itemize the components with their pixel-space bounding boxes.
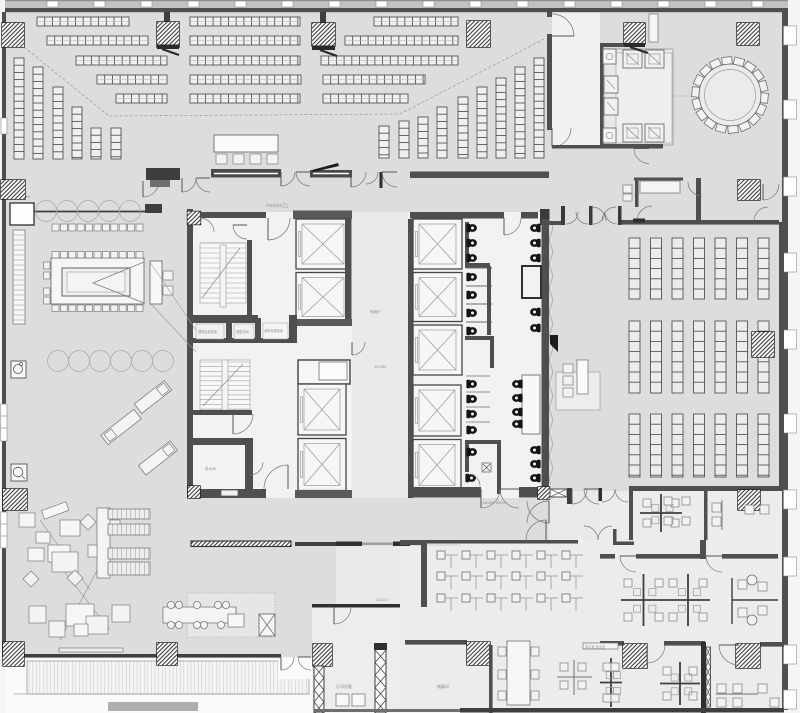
svg-text:10.002: 10.002 — [374, 364, 387, 369]
svg-text:电梯厅: 电梯厅 — [370, 309, 381, 314]
svg-text:打印设备: 打印设备 — [336, 683, 352, 689]
svg-text:FM1524(乙): FM1524(乙) — [266, 202, 289, 208]
svg-text:LOGO: LOGO — [376, 597, 388, 602]
svg-text:强电井间: 强电井间 — [236, 329, 249, 334]
svg-text:楼梯走道前室: 楼梯走道前室 — [198, 329, 217, 334]
svg-text:消防电梯前室: 消防电梯前室 — [264, 328, 283, 333]
svg-text:储藏间: 储藏间 — [437, 683, 449, 689]
svg-text:MD324·MD324: MD324·MD324 — [483, 501, 507, 505]
svg-text:会议室 会议室: 会议室 会议室 — [585, 644, 605, 649]
svg-text:茶水间: 茶水间 — [205, 466, 216, 471]
